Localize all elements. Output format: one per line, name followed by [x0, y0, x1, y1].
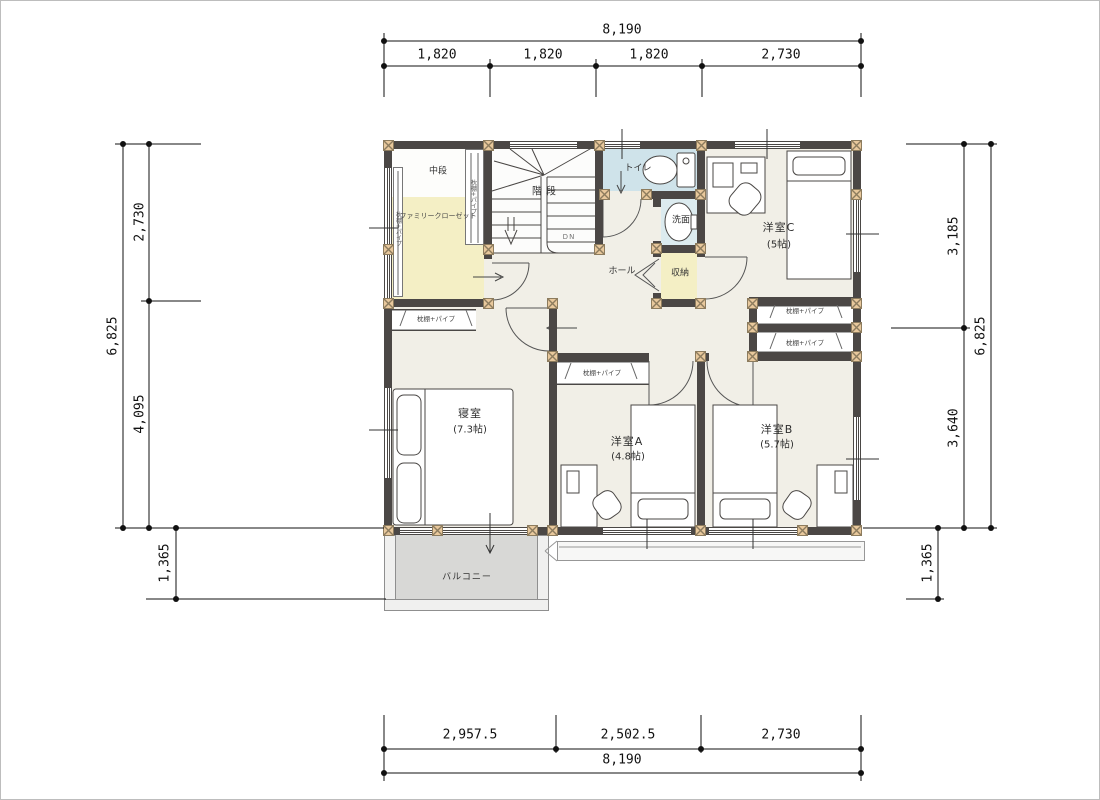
floor-balcony [395, 535, 538, 599]
pillar-post [527, 525, 538, 536]
wall-segment [484, 141, 492, 259]
pillar-post [851, 189, 862, 200]
label-balcony: バルコニー [442, 570, 492, 583]
pillar-post [851, 525, 862, 536]
pillar-post [851, 351, 862, 362]
window-bedroom-left [384, 387, 392, 479]
label-stairs: 階段 [532, 183, 560, 198]
label-nakadan: 中段 [429, 164, 447, 177]
pillar-post [483, 140, 494, 151]
wall-segment [384, 301, 392, 387]
label-western-b-size: (5.7帖) [760, 436, 794, 451]
wall-segment [384, 299, 492, 307]
window-room-a-bottom [602, 527, 692, 535]
window-balcony-slider [399, 527, 531, 535]
label-pipe-left: 枕棚+パイプ [394, 211, 403, 246]
balcony-wall-bottom [384, 599, 549, 611]
wall-segment [531, 527, 602, 535]
dim-top-seg-3: 1,820 [629, 48, 668, 63]
pillar-post [695, 351, 706, 362]
pillar-post [747, 351, 758, 362]
pillar-post [851, 322, 862, 333]
wall-segment [749, 297, 861, 305]
pillar-post [547, 351, 558, 362]
dim-bottom-seg-2: 2,502.5 [601, 728, 656, 743]
pillar-post [599, 189, 610, 200]
pillar-post [747, 322, 758, 333]
pillar-post [851, 140, 862, 151]
pillar-post [383, 298, 394, 309]
window-stairs-top [509, 141, 578, 149]
pillar-post [547, 525, 558, 536]
pillar-post [651, 298, 662, 309]
label-toilet: トイレ [624, 161, 651, 174]
label-western-a-size: (4.8帖) [611, 448, 645, 463]
dim-right-seg-1: 3,185 [947, 216, 962, 255]
label-bedroom-size: (7.3帖) [453, 421, 487, 436]
label-bedroom: 寝室 [458, 405, 482, 421]
dim-bottom-seg-3: 2,730 [761, 728, 800, 743]
wall-segment [641, 141, 734, 149]
dim-top-seg-1: 1,820 [417, 48, 456, 63]
pillar-post [695, 298, 706, 309]
pillar-post [383, 244, 394, 255]
window-closet-left [384, 167, 392, 301]
dim-top-seg-4: 2,730 [761, 48, 800, 63]
floor-stairs [492, 149, 595, 253]
pillar-post [594, 244, 605, 255]
pillar-post [851, 298, 862, 309]
wall-segment [549, 303, 557, 535]
wall-segment [749, 325, 861, 331]
label-closet-room-b: 枕棚+パイプ [786, 337, 824, 347]
wall-segment [557, 353, 649, 361]
pillar-post [432, 525, 443, 536]
dim-left-lower: 1,365 [158, 543, 173, 582]
pillar-post [483, 244, 494, 255]
pillar-post [547, 298, 558, 309]
pillar-post [383, 140, 394, 151]
dim-top-total: 8,190 [602, 23, 641, 38]
label-closet-room-a: 枕棚+パイプ [583, 367, 621, 377]
dim-top-seg-2: 1,820 [523, 48, 562, 63]
window-room-b-bottom [708, 527, 798, 535]
label-closet-bedroom: 枕棚+パイプ [417, 313, 455, 323]
label-western-c-size: (5帖) [767, 236, 791, 251]
eaves-band [557, 541, 865, 561]
pillar-post [797, 525, 808, 536]
label-washroom: 洗面 [672, 213, 690, 226]
label-family-closet: ファミリークローゼット [400, 211, 477, 221]
pillar-post [695, 189, 706, 200]
dim-bottom-total: 8,190 [602, 753, 641, 768]
label-western-c: 洋室C [763, 219, 796, 235]
dim-left-seg-1: 2,730 [133, 202, 148, 241]
dim-right-seg-2: 3,640 [947, 408, 962, 447]
floor-plan-canvas: 中段 ファミリークローゼット 枕棚+パイプ 枕棚+パイプ 階段 DN トイレ 洗… [0, 0, 1100, 800]
dim-left-seg-2: 4,095 [133, 394, 148, 433]
dim-right-lower: 1,365 [921, 543, 936, 582]
window-room-b-right [853, 416, 861, 501]
pillar-post [695, 525, 706, 536]
window-room-c-right [853, 197, 861, 273]
pillar-post [483, 298, 494, 309]
pillar-post [594, 140, 605, 151]
balcony-wall-right [537, 535, 549, 601]
label-pipe-right: 枕棚+パイプ [469, 179, 478, 214]
pillar-post [696, 140, 707, 151]
label-storage: 収納 [671, 266, 689, 279]
label-closet-room-c: 枕棚+パイプ [786, 305, 824, 315]
pillar-post [383, 525, 394, 536]
pillar-post [695, 243, 706, 254]
wall-segment [653, 199, 661, 207]
wall-segment [753, 353, 861, 361]
window-toilet-top [604, 141, 641, 149]
dim-right-total: 6,825 [974, 316, 989, 355]
dim-left-total: 6,825 [106, 316, 121, 355]
label-stairs-dn: DN [563, 233, 576, 241]
pillar-post [651, 243, 662, 254]
window-room-c-top [734, 141, 801, 149]
balcony-wall-left [384, 535, 396, 601]
pillar-post [747, 298, 758, 309]
wall-segment [697, 361, 705, 527]
label-hall: ホール [608, 264, 635, 277]
pillar-post [641, 189, 652, 200]
dim-bottom-seg-1: 2,957.5 [443, 728, 498, 743]
wall-segment [853, 273, 861, 416]
